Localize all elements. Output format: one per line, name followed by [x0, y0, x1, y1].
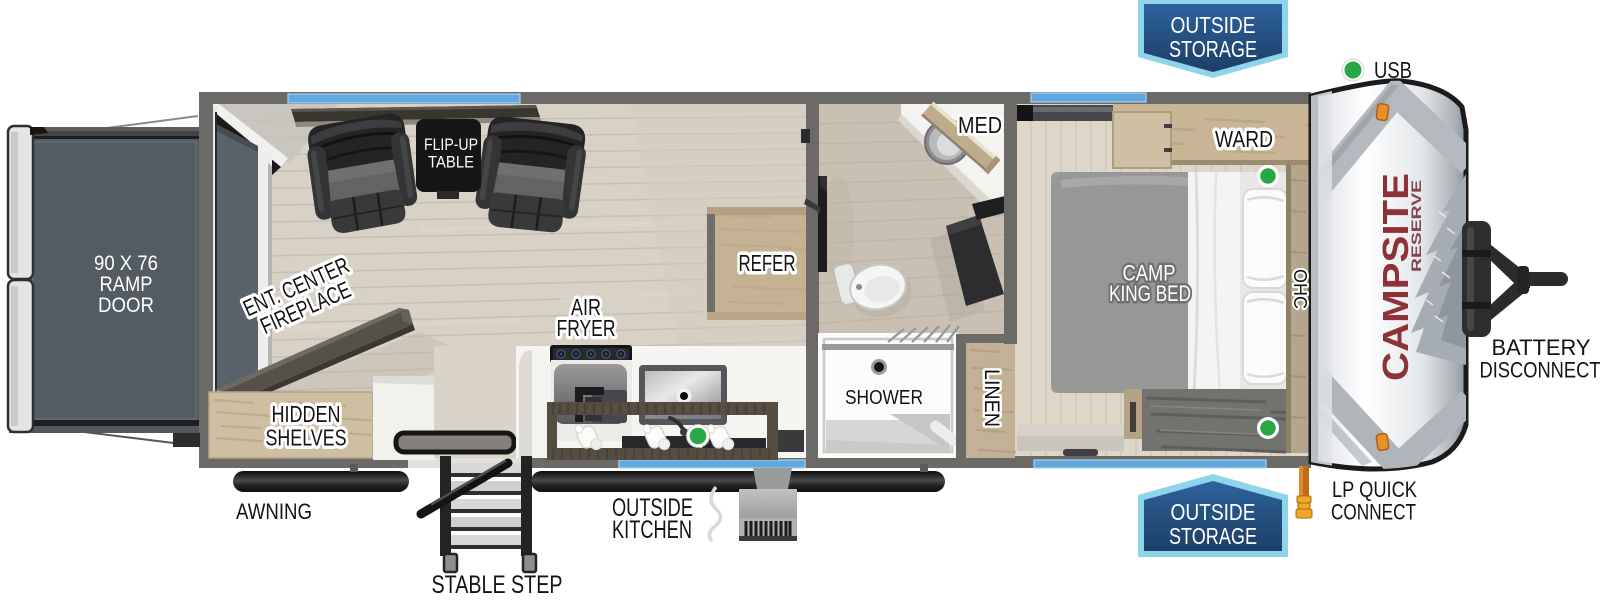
svg-text:HIDDEN: HIDDEN [272, 401, 341, 427]
svg-text:LINEN: LINEN [980, 369, 1003, 427]
svg-text:OUTSIDE: OUTSIDE [1171, 499, 1256, 525]
svg-text:FRYER: FRYER [557, 315, 616, 341]
svg-text:TABLE: TABLE [428, 153, 474, 172]
svg-text:OHC: OHC [1290, 269, 1310, 309]
svg-text:REFER: REFER [739, 250, 796, 276]
svg-text:STORAGE: STORAGE [1169, 36, 1257, 62]
svg-text:BATTERY: BATTERY [1492, 335, 1591, 360]
svg-text:RESERVE: RESERVE [1408, 180, 1424, 272]
svg-text:FLIP-UP: FLIP-UP [424, 135, 478, 154]
svg-text:LP QUICK: LP QUICK [1332, 477, 1417, 502]
svg-text:CONNECT: CONNECT [1331, 500, 1416, 525]
svg-text:DISCONNECT: DISCONNECT [1480, 358, 1600, 383]
svg-text:WARD: WARD [1215, 126, 1273, 152]
svg-text:KING BED: KING BED [1109, 281, 1191, 306]
svg-text:DOOR: DOOR [98, 294, 154, 317]
svg-text:SHOWER: SHOWER [845, 387, 923, 409]
svg-text:AWNING: AWNING [236, 499, 312, 524]
svg-text:RAMP: RAMP [100, 273, 153, 296]
svg-text:USB: USB [1374, 57, 1412, 83]
svg-text:OUTSIDE: OUTSIDE [1171, 12, 1256, 38]
svg-text:STORAGE: STORAGE [1169, 523, 1257, 549]
svg-text:SHELVES: SHELVES [266, 425, 347, 451]
svg-text:90 X 76: 90 X 76 [94, 252, 158, 275]
svg-text:MED: MED [958, 112, 1002, 138]
svg-text:STABLE STEP: STABLE STEP [432, 571, 563, 599]
svg-text:KITCHEN: KITCHEN [612, 516, 692, 544]
